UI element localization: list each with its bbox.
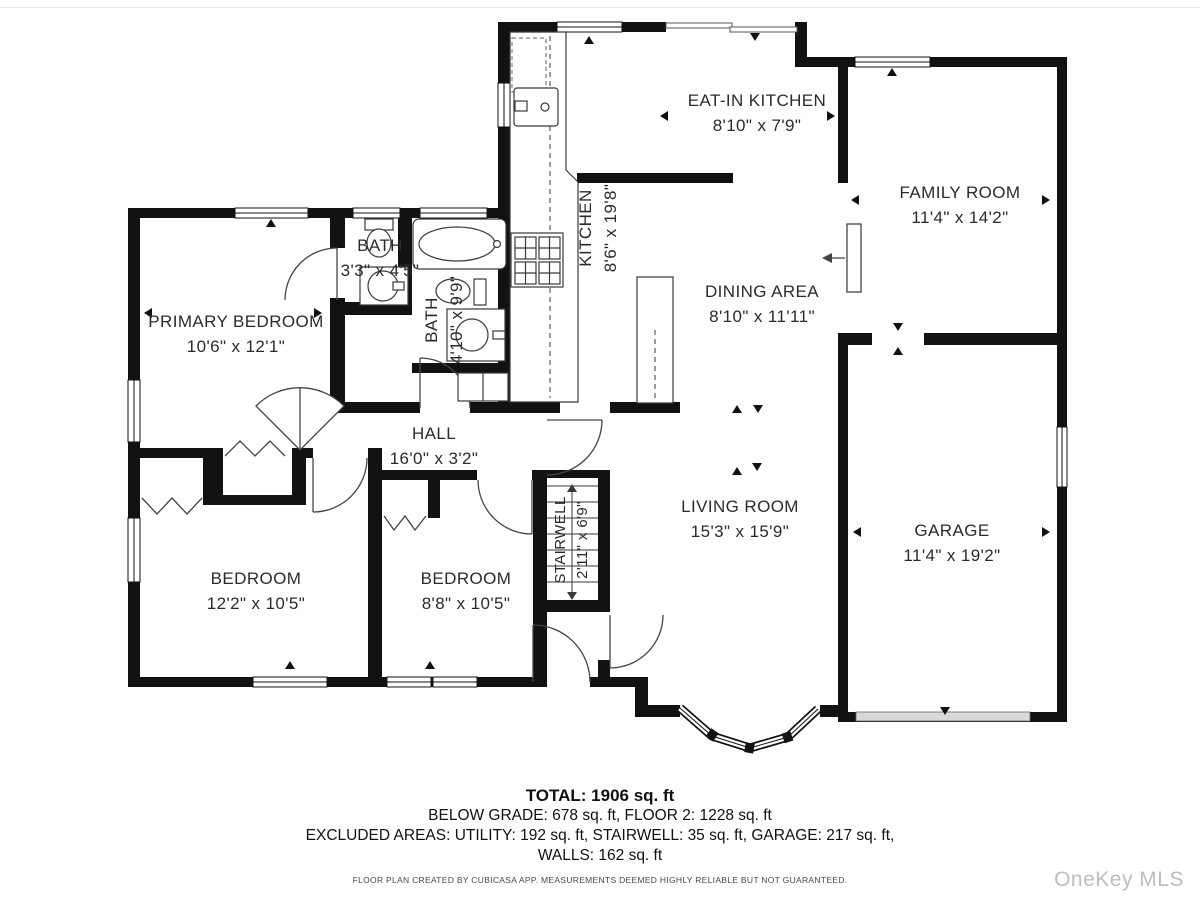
stove-icon [511,233,563,287]
linen-closet-icon [458,373,508,401]
garage-door-icon [856,712,1030,721]
room-label-bath-hall: BATH 4'10" x 9'9" [419,276,469,365]
total-area-text: TOTAL: 1906 sq. ft [0,786,1200,806]
floor-plan-canvas: EAT-IN KITCHEN 8'10" x 7'9" FAMILY ROOM … [0,0,1200,900]
floor-plan-drawing [0,0,1200,900]
room-dims: 8'8" x 10'5" [421,591,512,616]
room-label-bedroom-left: BEDROOM 12'2" x 10'5" [207,566,305,616]
bathtub-icon [413,219,506,269]
kitchen-sink-icon [514,88,558,126]
room-dims: 2'11" x 6'9" [572,496,594,583]
room-name: KITCHEN [573,184,598,273]
excluded-areas-text: EXCLUDED AREAS: UTILITY: 192 sq. ft, STA… [0,826,1200,846]
room-label-kitchen: KITCHEN 8'6" x 19'8" [573,184,623,273]
room-dims: 4'10" x 9'9" [444,276,469,365]
walls-area-text: WALLS: 162 sq. ft [0,846,1200,866]
room-name: GARAGE [903,518,1000,543]
room-dims: 11'4" x 19'2" [903,543,1000,568]
disclaimer-text: FLOOR PLAN CREATED BY CUBICASA APP. MEAS… [0,875,1200,885]
room-name: FAMILY ROOM [900,180,1021,205]
bay-window [680,708,818,754]
peninsula-counter-icon [637,277,673,403]
below-grade-text: BELOW GRADE: 678 sq. ft, FLOOR 2: 1228 s… [0,806,1200,826]
walls [128,22,1067,722]
room-name: BATH [419,276,444,365]
room-dims: 11'4" x 14'2" [900,205,1021,230]
room-dims: 8'10" x 7'9" [688,113,826,138]
room-dims: 10'6" x 12'1" [148,334,323,359]
room-name: BATH [341,233,420,258]
onekey-mls-watermark: OneKey MLS [1054,868,1184,892]
room-dims: 8'6" x 19'8" [598,184,623,273]
room-label-family-room: FAMILY ROOM 11'4" x 14'2" [900,180,1021,230]
room-label-bath-small: BATH 3'3" x 4'5" [341,233,420,283]
room-dims: 3'3" x 4'5" [341,258,420,283]
room-label-bedroom-right: BEDROOM 8'8" x 10'5" [421,566,512,616]
room-dims: 16'0" x 3'2" [390,446,479,471]
room-name: PRIMARY BEDROOM [148,309,323,334]
room-label-living-room: LIVING ROOM 15'3" x 15'9" [681,494,799,544]
room-label-primary-bedroom: PRIMARY BEDROOM 10'6" x 12'1" [148,309,323,359]
room-name: BEDROOM [421,566,512,591]
room-label-stairwell: STAIRWELL 2'11" x 6'9" [550,496,594,583]
room-name: HALL [390,421,479,446]
room-dims: 15'3" x 15'9" [681,519,799,544]
area-summary: TOTAL: 1906 sq. ft BELOW GRADE: 678 sq. … [0,786,1200,885]
room-label-hall: HALL 16'0" x 3'2" [390,421,479,471]
room-name: DINING AREA [705,279,819,304]
room-name: STAIRWELL [550,496,572,583]
room-label-dining-area: DINING AREA 8'10" x 11'11" [705,279,819,329]
room-dims: 12'2" x 10'5" [207,591,305,616]
room-dims: 8'10" x 11'11" [705,304,819,329]
room-label-eat-in-kitchen: EAT-IN KITCHEN 8'10" x 7'9" [688,88,826,138]
room-name: LIVING ROOM [681,494,799,519]
room-label-garage: GARAGE 11'4" x 19'2" [903,518,1000,568]
room-name: BEDROOM [207,566,305,591]
room-name: EAT-IN KITCHEN [688,88,826,113]
